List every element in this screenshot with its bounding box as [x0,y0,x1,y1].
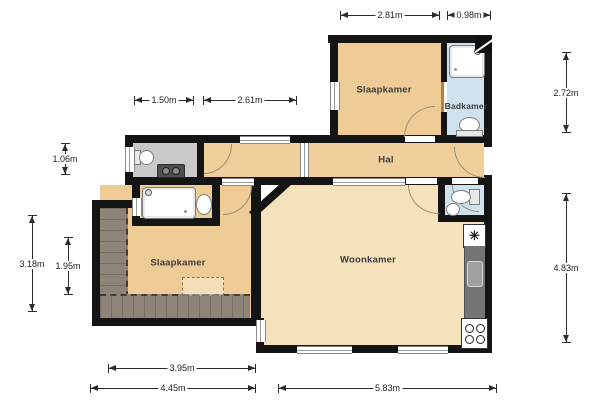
dimension-bottom-c: 5.83m [278,384,497,393]
shower-head-icon [145,189,152,196]
dimension-label: 3.95m [167,363,196,373]
wall [125,135,338,143]
sink-icon [196,194,212,215]
door-opening [406,178,437,184]
window [222,178,254,186]
door-opening [452,178,478,184]
window [398,346,448,354]
toilet-icon [139,150,154,165]
kitchen-sink-icon [467,261,483,287]
dimension-label: 5.83m [373,383,402,393]
wall [92,318,264,326]
dimension-right-b: 4.83m [562,193,571,343]
fridge-symbol: ✳ [469,228,480,244]
wall [92,200,100,326]
wall [197,143,204,177]
dimension-left-b: 3.18m [28,215,37,312]
washer-icon [157,164,185,178]
sink-icon [446,203,460,216]
dimension-label: 2.72m [551,88,580,98]
dimension-label: 1.06m [50,154,79,164]
room-label-living: Woonkamer [340,255,396,266]
dimension-inner-a: 1.50m [134,96,194,105]
toilet-icon [456,130,483,137]
room-label-bathroom-top: Badkamer [445,101,488,111]
dimension-label: 0.98m [454,10,483,20]
dimension-label: 1.50m [149,95,178,105]
dimension-bottom-a: 3.95m [108,364,256,373]
dimension-label: 4.45m [158,383,187,393]
door-leaf [441,82,444,112]
drain-icon [454,68,457,71]
wall [132,218,220,226]
fridge-icon: ✳ [463,224,486,248]
floor-plan: ✳ Slaapkamer Badkamer Hal Slaapkamer Woo… [0,0,600,400]
dimension-right-a: 2.72m [562,52,571,133]
glass-partition [300,143,309,177]
dimension-inner-b: 2.61m [203,96,297,105]
dimension-label: 3.18m [17,259,46,269]
window [297,346,352,354]
wall [256,345,492,353]
window [256,320,266,342]
toilet-icon [451,190,471,204]
dimension-label: 2.81m [375,10,404,20]
dimension-label: 2.61m [235,95,264,105]
flue-icon [475,36,492,53]
dimension-top-b: 0.98m [447,11,491,20]
dimension-label: 1.95m [53,261,82,271]
dimension-label: 4.83m [551,263,580,273]
front-door-opening [484,147,492,175]
room-label-hall: Hal [378,155,393,166]
dimension-top-a: 2.81m [340,11,440,20]
window [132,198,142,216]
dimension-bottom-b: 4.45m [90,384,256,393]
room-hall [204,143,484,177]
dashed-area [182,277,224,296]
sloped-ceiling-band-bottom [100,294,250,320]
wall [328,35,492,43]
drain-icon [184,210,187,213]
window [240,136,290,144]
stove-icon [461,318,488,349]
wall [438,215,492,222]
window [333,178,405,186]
window [330,82,340,110]
room-label-bedroom-top: Slaapkamer [356,85,411,96]
dimension-left-c: 1.95m [64,237,73,295]
room-label-bedroom-left: Slaapkamer [150,258,205,269]
wall [212,177,220,226]
dimension-left-a: 1.06m [61,143,70,175]
wall [251,177,261,318]
